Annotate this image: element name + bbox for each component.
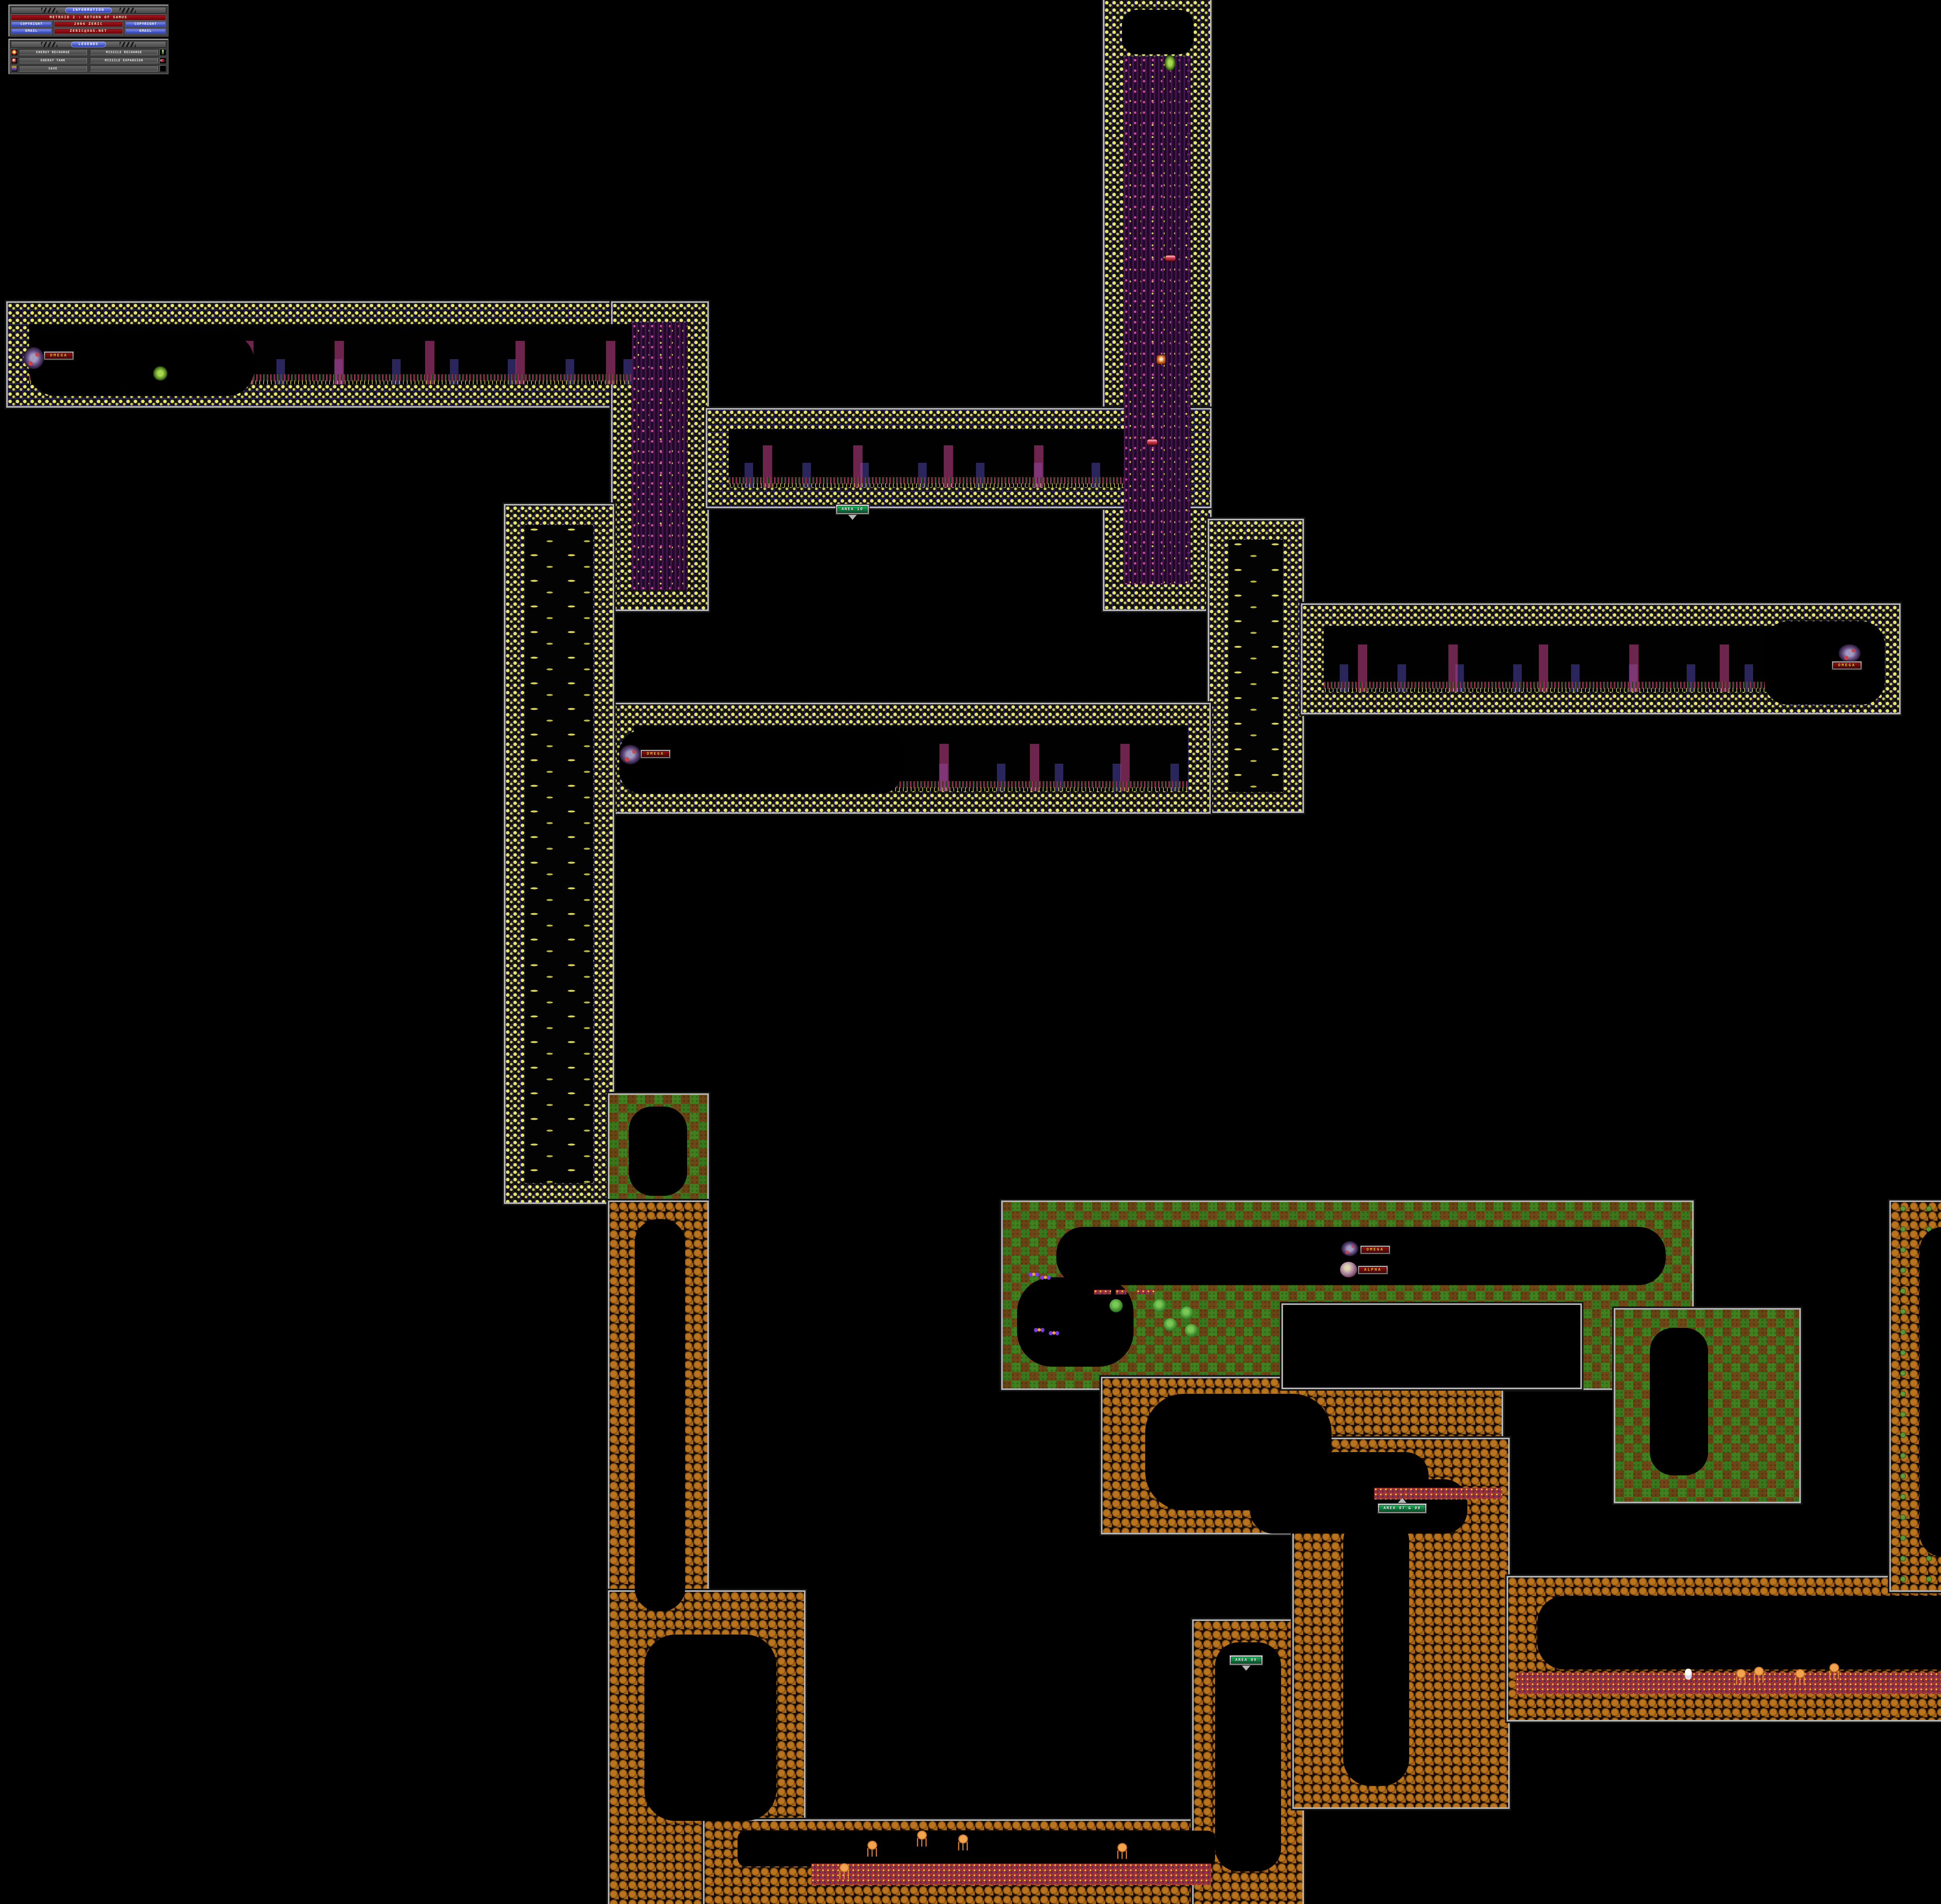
inner-d (1124, 56, 1191, 584)
metroid-sprite (620, 744, 643, 768)
copyright-row: COPYRIGHT 2004 ZERIC COPYRIGHT (11, 21, 166, 27)
cave-a (29, 334, 254, 396)
tunnel-m2 (1343, 1514, 1409, 1786)
information-panel: INFORMATION METROID 2 : RETURN OF SAMUS … (9, 5, 168, 36)
monster-label-text: OMEGA (1361, 1247, 1389, 1253)
email-row: EMAIL ZERIC@XAS.NET EMAIL (11, 28, 166, 34)
sign-arrow-down-icon (1242, 1666, 1250, 1671)
legends-panel: LEGENDS ENERGY RECHARGEMISSILE RECHARGEE… (9, 39, 168, 74)
legend-item: SAVE (11, 65, 87, 72)
legend-item (90, 65, 166, 72)
jelly-sprite (915, 1830, 929, 1847)
monster-label-text: OMEGA (642, 751, 669, 757)
cave-j2 (644, 1635, 776, 1821)
legend-item-label: ENERGY RECHARGE (19, 49, 87, 55)
inner-b (632, 322, 688, 590)
jelly-sprite (1828, 1663, 1841, 1679)
legends-header: LEGENDS (11, 41, 166, 48)
cave-f (1764, 621, 1885, 705)
tunnel-i (629, 1107, 687, 1196)
email-button-right[interactable]: EMAIL (125, 29, 166, 34)
bat-sprite (1048, 1329, 1060, 1338)
tunnel-n (1537, 1596, 1941, 1669)
area-sign: AREA 09 (1229, 1655, 1263, 1671)
bat-sprite (1033, 1326, 1045, 1335)
plant-sprite (1164, 52, 1176, 71)
sign-frame: AREA 10 (835, 504, 870, 515)
area-sign-text: AREA 09 (1231, 1657, 1261, 1664)
legend-item-label: MISSILE EXPANSION (90, 57, 158, 63)
tunnel-j4 (1215, 1642, 1281, 1871)
area-sign-text: AREA 07 & 08 (1379, 1505, 1425, 1512)
inner-c (729, 429, 1189, 487)
tunnel-k (1056, 1227, 1666, 1285)
moss-sprite (1185, 1324, 1198, 1337)
jelly-sprite (866, 1840, 879, 1857)
bat-sprite (1040, 1273, 1051, 1283)
bat-sprite (1028, 1270, 1040, 1280)
jelly-sprite (1116, 1843, 1129, 1859)
jelly-sprite (1752, 1666, 1766, 1683)
legend-item: ENERGY TANK (11, 57, 87, 64)
cave-d-top (1122, 10, 1194, 54)
energy-tank-icon (11, 57, 17, 64)
tunnel-j1i (635, 1219, 685, 1611)
jelly-sprite (1734, 1669, 1748, 1685)
missile-expansion-icon (160, 57, 166, 64)
moss-sprite (1153, 1299, 1166, 1312)
tunnel-o (1920, 1227, 1941, 1557)
sign-frame: AREA 09 (1229, 1655, 1263, 1666)
legend-item: ENERGY RECHARGE (11, 49, 87, 56)
jelly-sprite (838, 1863, 851, 1879)
jelly-sprite (1793, 1669, 1807, 1685)
acid-j3 (811, 1864, 1211, 1885)
copyright-value: 2004 ZERIC (54, 22, 123, 27)
legend-grid: ENERGY RECHARGEMISSILE RECHARGEENERGY TA… (11, 49, 166, 72)
email-value: ZERIC@XAS.NET (54, 29, 123, 34)
save-icon (11, 65, 17, 72)
legend-item-label (90, 66, 158, 71)
legend-item: MISSILE RECHARGE (90, 49, 166, 56)
legend-item-label: SAVE (19, 66, 87, 71)
monster-label-text: ALPHA (1359, 1267, 1387, 1273)
moss-sprite (1109, 1299, 1123, 1312)
cave-g (619, 730, 903, 794)
monster-label: OMEGA (1832, 661, 1862, 670)
alpha-sprite (1340, 1262, 1357, 1277)
metroid-sprite (23, 346, 46, 373)
monster-label: OMEGA (1360, 1245, 1391, 1254)
map-canvas: OMEGAOMEGAOMEGAOMEGAALPHAAREA 10AREA 06A… (0, 0, 1941, 1904)
monster-label: ALPHA (1358, 1265, 1388, 1275)
tunnel-l (1650, 1328, 1708, 1475)
missile-expansion-sprite (1147, 440, 1157, 445)
sign-frame: AREA 07 & 08 (1377, 1503, 1427, 1514)
game-title-bar: METROID 2 : RETURN OF SAMUS (11, 15, 166, 20)
legend-item-label: ENERGY TANK (19, 57, 87, 63)
acid-kb-3 (1137, 1290, 1155, 1294)
moss-sprite (1180, 1306, 1193, 1320)
energy-tank-sprite (1157, 355, 1165, 364)
information-header: INFORMATION (11, 7, 166, 14)
acid-n (1516, 1673, 1941, 1694)
monster-label: OMEGA (640, 749, 671, 759)
area-sign-text: AREA 10 (837, 506, 868, 513)
monster-label-text: OMEGA (45, 353, 73, 359)
hole-k (1283, 1305, 1580, 1388)
energy-recharge-icon (11, 49, 17, 56)
inner-e (1229, 540, 1283, 792)
plant-sprite (152, 363, 168, 381)
email-button-left[interactable]: EMAIL (11, 29, 52, 34)
legend-item: MISSILE EXPANSION (90, 57, 166, 64)
monster-label: OMEGA (43, 351, 74, 360)
area-sign: AREA 10 (835, 504, 870, 520)
acid-kb-1 (1094, 1290, 1111, 1294)
sign-arrow-up-icon (1398, 1498, 1406, 1503)
metroid-sprite (1341, 1240, 1360, 1259)
empty-icon-slot (160, 65, 166, 72)
info-legend-panel: INFORMATION METROID 2 : RETURN OF SAMUS … (9, 5, 168, 76)
copyright-button-right[interactable]: COPYRIGHT (125, 22, 166, 27)
information-header-title: INFORMATION (65, 7, 112, 13)
moss-sprite (1164, 1318, 1177, 1331)
jelly-sprite (957, 1834, 970, 1850)
inner-h (525, 525, 593, 1183)
white-creature-sprite (1685, 1669, 1692, 1680)
cave-j3 (738, 1831, 1215, 1866)
acid-kb-2 (1116, 1290, 1127, 1294)
legends-header-title: LEGENDS (71, 42, 106, 47)
monster-label-text: OMEGA (1833, 662, 1861, 669)
copyright-button-left[interactable]: COPYRIGHT (11, 22, 52, 27)
area-sign: AREA 07 & 08 (1377, 1498, 1427, 1514)
legend-item-label: MISSILE RECHARGE (90, 49, 158, 55)
sign-arrow-down-icon (848, 515, 857, 520)
missile-recharge-icon (160, 49, 166, 56)
missile-expansion-sprite (1165, 255, 1175, 261)
